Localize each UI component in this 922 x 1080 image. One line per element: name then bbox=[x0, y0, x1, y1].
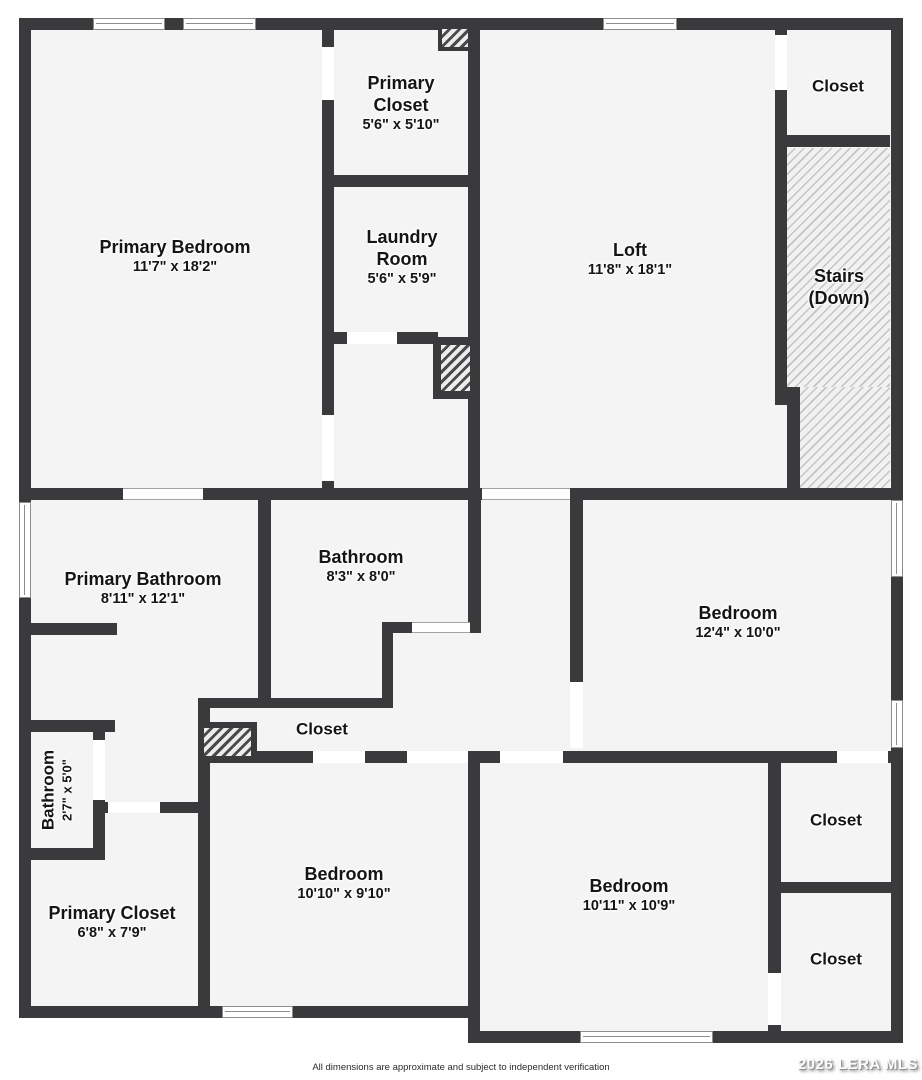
room-name: Primary Closet bbox=[345, 73, 457, 117]
wall bbox=[19, 488, 482, 500]
room-name: Primary Bedroom bbox=[99, 237, 250, 259]
chase-hatch bbox=[198, 722, 257, 762]
window-symbol bbox=[891, 500, 903, 577]
window-symbol bbox=[183, 18, 256, 30]
door-opening bbox=[322, 415, 334, 481]
stairs-hatch bbox=[800, 387, 890, 488]
wall bbox=[258, 488, 271, 700]
wall bbox=[775, 90, 787, 387]
room-dims: 5'6" x 5'10" bbox=[345, 117, 457, 135]
wall bbox=[570, 500, 583, 682]
room-name: Primary Bathroom bbox=[64, 569, 221, 591]
room-label-stairs: Stairs (Down) bbox=[791, 266, 887, 310]
room-name: Closet bbox=[296, 720, 348, 741]
room-dims: 8'11" x 12'1" bbox=[64, 591, 221, 609]
wall bbox=[382, 622, 393, 708]
room-label-primary-bedroom: Primary Bedroom 11'7" x 18'2" bbox=[99, 237, 250, 277]
wall bbox=[397, 332, 438, 344]
wall bbox=[31, 623, 117, 635]
room-dims: 11'7" x 18'2" bbox=[99, 259, 250, 277]
room-name: Bathroom bbox=[39, 750, 60, 830]
window-symbol bbox=[19, 502, 31, 598]
room-name: Bathroom bbox=[319, 547, 404, 569]
door-opening bbox=[775, 35, 787, 90]
floor-plan: Primary Bedroom 11'7" x 18'2" Primary Cl… bbox=[0, 0, 922, 1080]
room-label-closet-top-right: Closet bbox=[812, 77, 864, 98]
room-label-bedroom-east: Bedroom 12'4" x 10'0" bbox=[695, 603, 780, 643]
wall bbox=[468, 500, 481, 633]
room-dims: 2'7" x 5'0" bbox=[59, 750, 75, 830]
room-label-bedroom-southeast: Bedroom 10'11" x 10'9" bbox=[583, 876, 675, 916]
room-dims: 10'10" x 9'10" bbox=[297, 886, 390, 904]
wall bbox=[322, 100, 334, 415]
room-dims: 5'6" x 5'9" bbox=[352, 271, 452, 289]
window-symbol bbox=[603, 18, 677, 30]
room-name: Stairs (Down) bbox=[791, 266, 887, 310]
wall bbox=[787, 395, 800, 500]
disclaimer-text: All dimensions are approximate and subje… bbox=[0, 1062, 922, 1073]
wall bbox=[787, 135, 890, 147]
wall bbox=[93, 726, 105, 740]
room-dims: 11'8" x 18'1" bbox=[588, 262, 672, 280]
cased-opening bbox=[482, 488, 570, 500]
room-name: Bedroom bbox=[695, 603, 780, 625]
wall bbox=[570, 488, 903, 500]
door-opening bbox=[837, 751, 888, 763]
room-dims: 8'3" x 8'0" bbox=[319, 569, 404, 587]
wall bbox=[322, 332, 347, 344]
window-symbol bbox=[93, 18, 165, 30]
room-label-loft: Loft 11'8" x 18'1" bbox=[588, 240, 672, 280]
door-opening bbox=[407, 751, 468, 763]
wall bbox=[888, 751, 903, 763]
room-name: Closet bbox=[810, 950, 862, 971]
room-label-laundry: Laundry Room 5'6" x 5'9" bbox=[352, 227, 452, 289]
door-opening bbox=[570, 682, 583, 748]
room-label-closet-right-lower: Closet bbox=[810, 950, 862, 971]
room-name: Laundry Room bbox=[352, 227, 452, 271]
wall bbox=[768, 882, 903, 893]
door-opening bbox=[768, 973, 781, 1025]
window-symbol bbox=[222, 1006, 293, 1018]
wall bbox=[775, 18, 787, 35]
door-opening bbox=[322, 47, 334, 100]
room-label-bathroom: Bathroom 8'3" x 8'0" bbox=[319, 547, 404, 587]
wall bbox=[322, 30, 334, 47]
wall bbox=[198, 698, 393, 708]
wall bbox=[768, 1025, 781, 1031]
cased-opening bbox=[412, 622, 470, 633]
wall bbox=[334, 175, 480, 187]
room-name: Bedroom bbox=[297, 864, 390, 886]
room-label-bathroom-small: Bathroom 2'7" x 5'0" bbox=[39, 750, 76, 830]
door-opening bbox=[347, 332, 397, 344]
wall bbox=[365, 751, 407, 763]
wall bbox=[768, 763, 781, 973]
wall bbox=[563, 751, 768, 763]
wall bbox=[19, 848, 105, 860]
cased-opening bbox=[123, 488, 203, 500]
room-label-closet-right-upper: Closet bbox=[810, 811, 862, 832]
room-name: Primary Closet bbox=[48, 903, 175, 925]
room-label-primary-closet-top: Primary Closet 5'6" x 5'10" bbox=[345, 73, 457, 135]
room-name: Closet bbox=[812, 77, 864, 98]
room-dims: 10'11" x 10'9" bbox=[583, 898, 675, 916]
chase-hatch bbox=[438, 25, 472, 51]
room-name: Closet bbox=[810, 811, 862, 832]
room-name: Bedroom bbox=[583, 876, 675, 898]
room-name: Loft bbox=[588, 240, 672, 262]
room-label-closet-middle: Closet bbox=[296, 720, 348, 741]
door-opening bbox=[108, 802, 160, 813]
room-dims: 6'8" x 7'9" bbox=[48, 925, 175, 943]
door-opening bbox=[500, 751, 563, 763]
mls-watermark: 2026 LERA MLS bbox=[798, 1056, 918, 1073]
wall bbox=[783, 751, 837, 763]
room-label-primary-closet-bottom: Primary Closet 6'8" x 7'9" bbox=[48, 903, 175, 943]
wall bbox=[468, 751, 480, 1043]
room-label-primary-bathroom: Primary Bathroom 8'11" x 12'1" bbox=[64, 569, 221, 609]
door-opening bbox=[313, 751, 365, 763]
wall bbox=[468, 18, 480, 500]
door-opening bbox=[93, 740, 105, 800]
room-dims: 12'4" x 10'0" bbox=[695, 625, 780, 643]
chase-hatch bbox=[433, 337, 478, 399]
window-symbol bbox=[891, 700, 903, 748]
window-symbol bbox=[580, 1031, 713, 1043]
room-label-bedroom-southwest: Bedroom 10'10" x 9'10" bbox=[297, 864, 390, 904]
wall bbox=[768, 751, 783, 763]
